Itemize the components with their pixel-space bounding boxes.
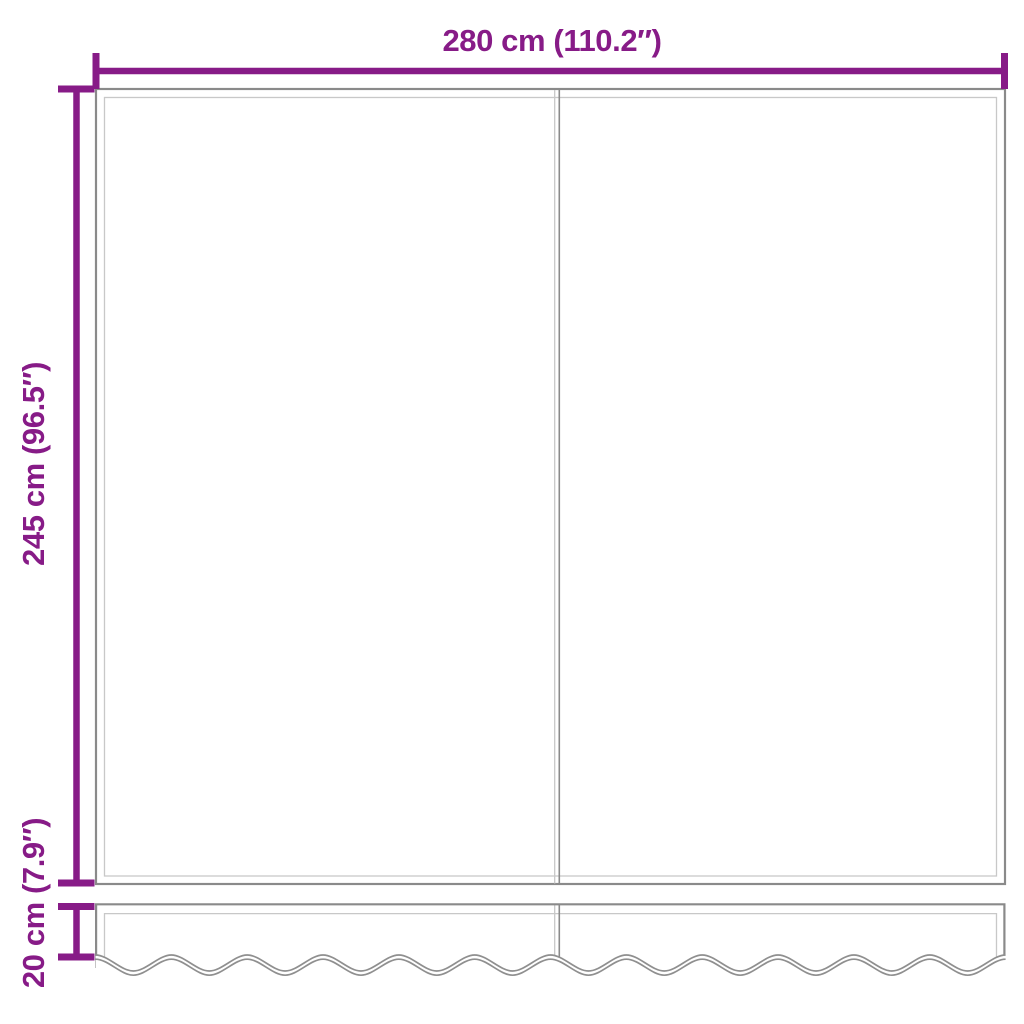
height-dimension-label: 245 cm (96.5″): [16, 362, 51, 566]
valance-height-dimension-label: 20 cm (7.9″): [16, 818, 51, 988]
width-dimension: 280 cm (110.2″): [95, 23, 1006, 89]
dimension-diagram-canvas: 280 cm (110.2″) 245 cm (96.5″) 20 cm (7.…: [0, 0, 1024, 1024]
fabric-panel-outline: [96, 89, 1005, 884]
valance-scallop-mask: [96, 955, 1006, 1010]
fabric-panel: [96, 89, 1005, 884]
valance-strip: [95, 904, 1006, 1010]
width-dimension-label: 280 cm (110.2″): [442, 23, 661, 58]
height-dimension: 245 cm (96.5″): [16, 89, 95, 883]
valance-height-dimension: 20 cm (7.9″): [16, 818, 95, 988]
product-dimension-diagram: 280 cm (110.2″) 245 cm (96.5″) 20 cm (7.…: [0, 0, 1024, 1024]
